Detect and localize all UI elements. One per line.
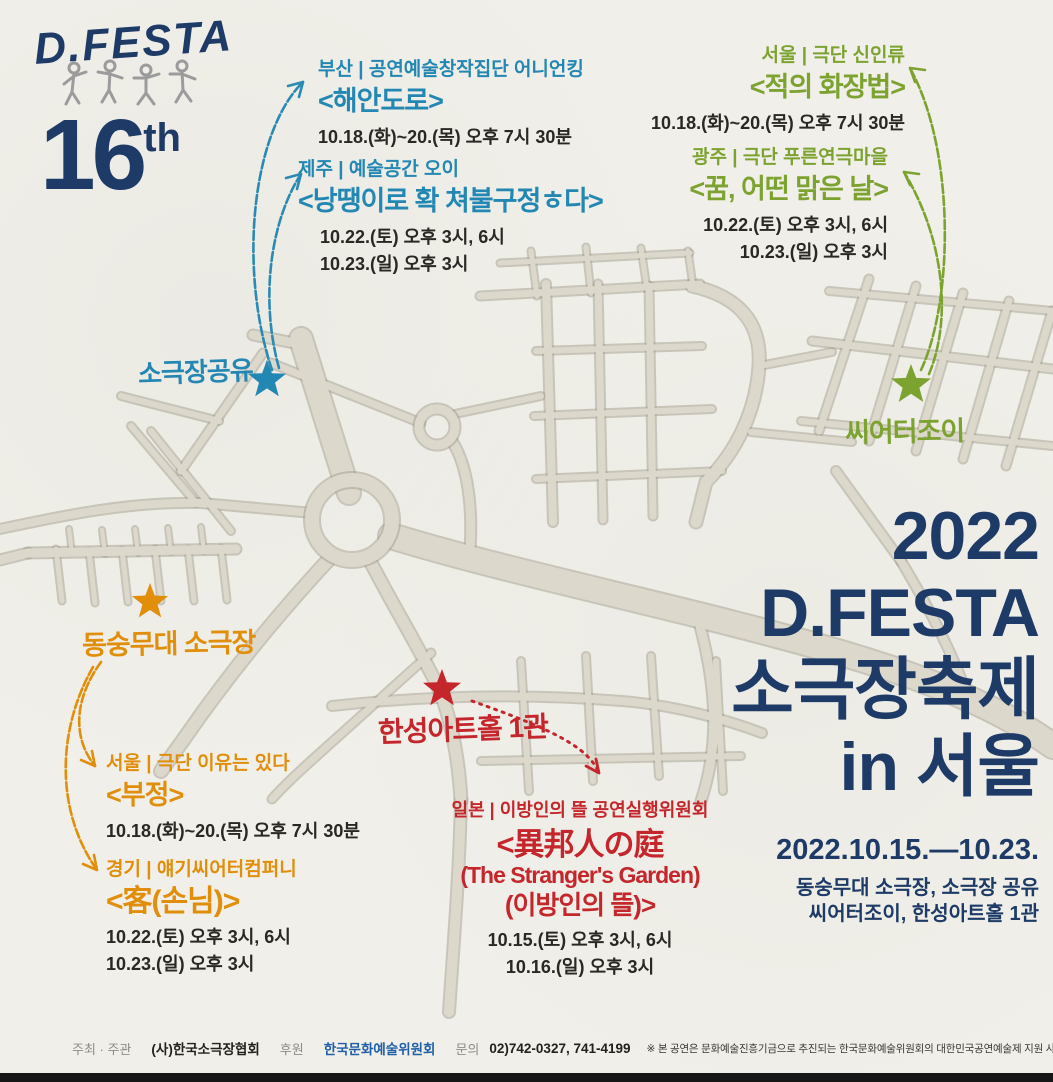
show-region-company: 제주 | 예술공간 오이: [298, 158, 603, 182]
show-annotation-seoul-shinin: 서울 | 극단 신인류 <적의 화장법> 10.18.(화)~20.(목) 오후…: [651, 44, 905, 137]
show-region-company: 일본 | 이방인의 뜰 공연실행위원회: [415, 798, 745, 822]
show-schedule: 10.18.(화)~20.(목) 오후 7시 30분: [106, 818, 360, 845]
festival-year: 2022: [731, 498, 1039, 575]
festival-brand: D.FESTA: [731, 575, 1039, 652]
show-annotation-japan: 일본 | 이방인의 뜰 공연실행위원회 <異邦人の庭 (The Stranger…: [415, 798, 745, 981]
festival-dates: 2022.10.15.—10.23.: [731, 834, 1039, 867]
show-title: <적의 화장법>: [651, 71, 905, 104]
show-region-company: 서울 | 극단 이유는 있다: [106, 752, 360, 776]
sponsor-org: 한국문화예술위원회: [324, 1038, 436, 1058]
show-annotation-gyeonggi: 경기 | 얘기씨어터컴퍼니 <客(손님)> 10.22.(토) 오후 3시, 6…: [106, 858, 297, 978]
show-schedule: 10.18.(화)~20.(목) 오후 7시 30분: [318, 124, 584, 151]
edition-number: 16: [40, 99, 143, 211]
show-schedule: 10.15.(토) 오후 3시, 6시: [415, 927, 745, 954]
show-region-company: 부산 | 공연예술창작집단 어니언킹: [318, 58, 584, 82]
show-schedule: 10.18.(화)~20.(목) 오후 7시 30분: [651, 110, 905, 137]
show-schedule: 10.22.(토) 오후 3시, 6시: [320, 224, 603, 251]
show-annotation-seoul-iyu: 서울 | 극단 이유는 있다 <부정> 10.18.(화)~20.(목) 오후 …: [106, 752, 360, 845]
venue-label-hansung-arthall: 한성아트홀 1관: [377, 705, 548, 751]
hand-arrow-green-2: [904, 172, 942, 374]
show-title: <客(손님)>: [106, 885, 297, 918]
venue-label-theater-joy: 씨어터조이: [845, 409, 965, 450]
host-label: 주최 · 주관: [72, 1039, 131, 1058]
host-org: (사)한국소극장협회: [151, 1038, 259, 1058]
show-region-company: 서울 | 극단 신인류: [651, 44, 905, 68]
sponsor-label: 후원: [280, 1039, 304, 1058]
venue-label-sogeukjang-gongyu: 소극장공유: [137, 350, 253, 391]
show-title: <해안도로>: [318, 85, 584, 118]
edition-suffix: th: [143, 116, 181, 160]
festival-title-block: 2022 D.FESTA 소극장축제 in 서울 2022.10.15.—10.…: [731, 498, 1039, 927]
show-schedule: 10.22.(토) 오후 3시, 6시: [689, 212, 888, 239]
bottom-edge-bar: [0, 1073, 1053, 1082]
contact-label: 문의: [455, 1039, 479, 1058]
show-annotation-gwangju: 광주 | 극단 푸른연극마을 <꿈, 어떤 맑은 날> 10.22.(토) 오후…: [689, 146, 888, 266]
show-title: <꿈, 어떤 맑은 날>: [689, 173, 888, 206]
show-schedule: 10.23.(일) 오후 3시: [689, 239, 888, 266]
footer-credits: 주최 · 주관 (사)한국소극장협회 후원 한국문화예술위원회 문의 02)74…: [0, 1030, 1053, 1066]
festival-name: 소극장축제: [731, 652, 1039, 729]
festival-poster: D.FESTA 16th 부산 | 공연예술창작집단 어니언킹 <해안도로> 1…: [0, 0, 1053, 1082]
show-schedule: 10.23.(일) 오후 3시: [106, 951, 297, 978]
hand-arrow-orange-2: [66, 667, 97, 870]
show-region-company: 경기 | 얘기씨어터컴퍼니: [106, 858, 297, 882]
festival-venues-line1: 동숭무대 소극장, 소극장 공유: [731, 875, 1039, 901]
show-title: <낭땡이로 확 쳐불구정ㅎ다>: [298, 185, 603, 218]
show-region-company: 광주 | 극단 푸른연극마을: [689, 146, 888, 170]
show-schedule: 10.16.(일) 오후 3시: [415, 954, 745, 981]
festival-venues-line2: 씨어터조이, 한성아트홀 1관: [731, 901, 1039, 927]
hand-arrow-orange-1: [79, 662, 101, 766]
show-schedule: 10.23.(일) 오후 3시: [320, 251, 603, 278]
show-title-en: (The Stranger's Garden): [415, 862, 745, 889]
venue-label-dongsung-stage: 동숭무대 소극장: [82, 620, 256, 662]
show-title: <異邦人の庭: [415, 828, 745, 861]
footer-notice: ※ 본 공연은 문화예술진흥기금으로 추진되는 한국문화예술위원회의 대한민국공…: [647, 1041, 1053, 1056]
contact-phone: 02)742-0327, 741-4199: [489, 1041, 630, 1056]
festival-location: in 서울: [731, 729, 1039, 806]
show-annotation-jeju: 제주 | 예술공간 오이 <낭땡이로 확 쳐불구정ㅎ다> 10.22.(토) 오…: [298, 158, 603, 278]
show-annotation-busan: 부산 | 공연예술창작집단 어니언킹 <해안도로> 10.18.(화)~20.(…: [318, 58, 584, 151]
edition-16th: 16th: [40, 98, 181, 213]
show-title-kr: (이방인의 뜰)>: [415, 890, 745, 921]
venue-star-marker: [891, 364, 931, 402]
show-schedule: 10.22.(토) 오후 3시, 6시: [106, 924, 297, 951]
show-title: <부정>: [106, 779, 360, 812]
